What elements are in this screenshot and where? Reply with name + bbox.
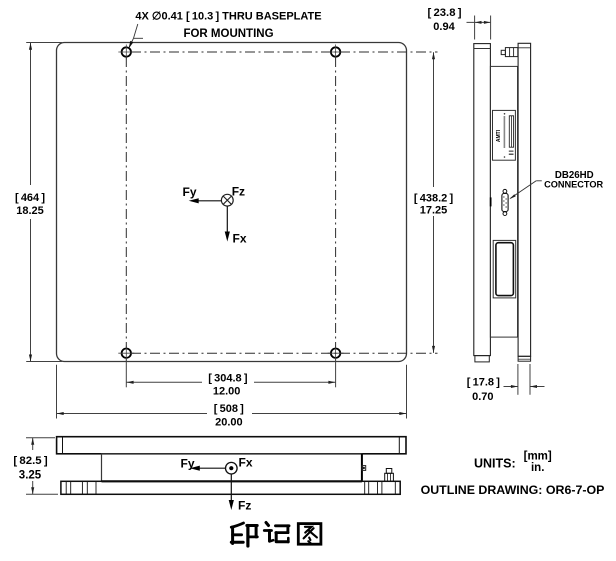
svg-text:3.25: 3.25 <box>19 470 42 482</box>
svg-text:FOR MOUNTING: FOR MOUNTING <box>183 28 273 40</box>
svg-text:20.00: 20.00 <box>215 417 243 429</box>
svg-text:12.00: 12.00 <box>213 386 241 398</box>
svg-text:Fy: Fy <box>183 185 197 199</box>
svg-text:Fy: Fy <box>181 457 195 471</box>
svg-text:[ 17.8 ]: [ 17.8 ] <box>467 377 500 389</box>
svg-text:AMTI: AMTI <box>496 129 502 142</box>
svg-text:[ 82.5 ]: [ 82.5 ] <box>13 455 48 467</box>
svg-text:Fz: Fz <box>232 185 245 199</box>
svg-text:CONNECTOR: CONNECTOR <box>544 180 603 190</box>
svg-text:[ 508 ]: [ 508 ] <box>214 403 244 415</box>
svg-text:Fx: Fx <box>233 232 247 246</box>
svg-text:4X ∅0.41 [ 10.3 ] THRU BASEPLA: 4X ∅0.41 [ 10.3 ] THRU BASEPLATE <box>135 11 321 23</box>
svg-text:0.94: 0.94 <box>433 21 455 33</box>
svg-text:in.: in. <box>531 462 544 474</box>
svg-text:[ 464 ]: [ 464 ] <box>15 192 45 204</box>
svg-text:17.25: 17.25 <box>420 205 448 217</box>
svg-text:Fz: Fz <box>238 499 251 513</box>
svg-text:Fx: Fx <box>239 456 253 470</box>
svg-text:OUTLINE DRAWING: OR6-7-OP: OUTLINE DRAWING: OR6-7-OP <box>421 483 605 497</box>
svg-text:[ 304.8 ]: [ 304.8 ] <box>208 373 248 385</box>
svg-text:[ 23.8 ]: [ 23.8 ] <box>427 7 461 19</box>
svg-text:18.25: 18.25 <box>16 205 44 217</box>
svg-text:UNITS:: UNITS: <box>474 457 516 471</box>
svg-text:[mm]: [mm] <box>524 451 552 463</box>
svg-text:[ 438.2 ]: [ 438.2 ] <box>414 193 454 205</box>
svg-text:0.70: 0.70 <box>472 391 493 403</box>
